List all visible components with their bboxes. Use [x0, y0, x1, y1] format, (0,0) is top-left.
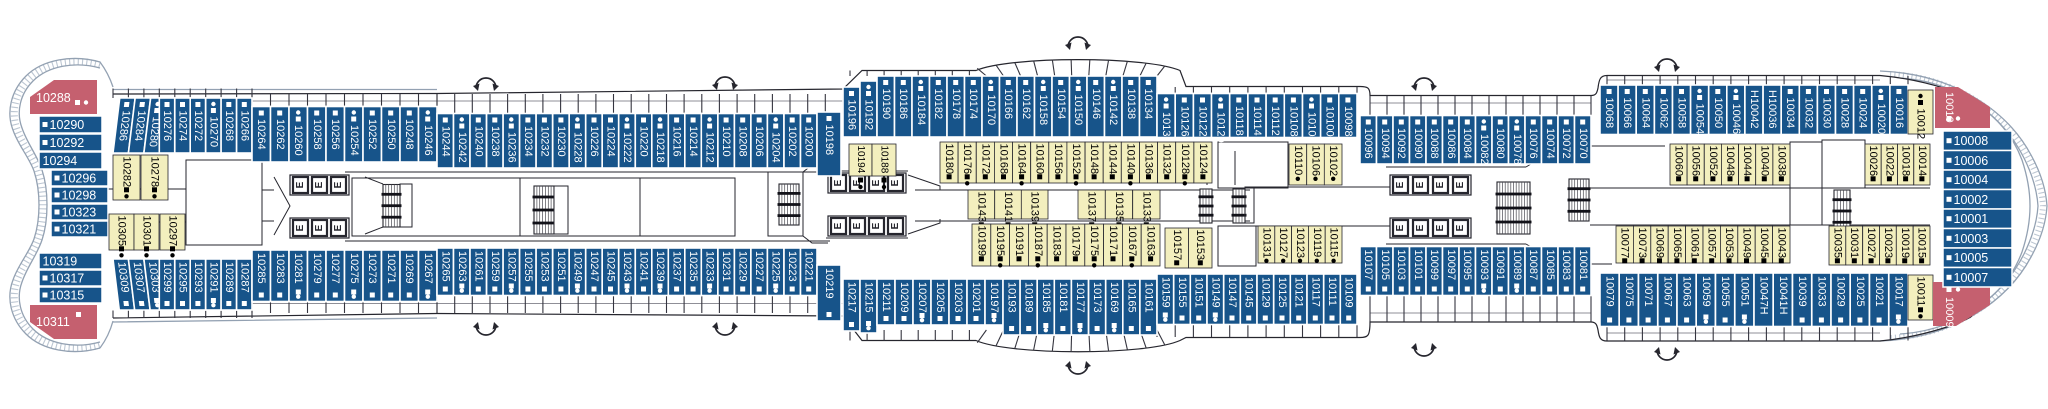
- svg-text:10098: 10098: [1342, 106, 1354, 137]
- svg-text:10093: 10093: [1478, 250, 1490, 281]
- svg-text:10175: 10175: [1088, 226, 1100, 257]
- svg-text:10094: 10094: [1379, 128, 1391, 159]
- svg-text:10191: 10191: [1013, 226, 1025, 257]
- svg-text:E: E: [1435, 181, 1446, 188]
- svg-text:10216: 10216: [671, 126, 683, 157]
- svg-text:10218: 10218: [654, 132, 666, 163]
- svg-text:10250: 10250: [385, 119, 397, 150]
- svg-text:10085: 10085: [1544, 250, 1556, 281]
- svg-text:10163: 10163: [1145, 226, 1157, 257]
- svg-text:E: E: [333, 224, 344, 231]
- svg-text:10241: 10241: [638, 251, 650, 282]
- svg-text:E: E: [833, 179, 844, 186]
- svg-text:10315: 10315: [50, 289, 85, 303]
- svg-text:E: E: [871, 179, 882, 186]
- svg-text:10128: 10128: [1179, 144, 1191, 175]
- svg-text:10059: 10059: [1700, 276, 1712, 307]
- svg-text:10219: 10219: [823, 268, 835, 299]
- svg-text:H10042: H10042: [1748, 90, 1760, 129]
- svg-text:10135: 10135: [1113, 192, 1125, 223]
- svg-text:10217: 10217: [846, 282, 858, 313]
- svg-text:10176: 10176: [961, 144, 973, 175]
- svg-text:10023: 10023: [1882, 228, 1894, 259]
- svg-text:10052: 10052: [1707, 146, 1719, 177]
- svg-text:10053: 10053: [1723, 228, 1735, 259]
- svg-text:10050: 10050: [1712, 98, 1724, 129]
- svg-text:10230: 10230: [555, 126, 567, 157]
- svg-text:10179: 10179: [1069, 226, 1081, 257]
- svg-text:10294: 10294: [43, 154, 78, 168]
- svg-text:10089: 10089: [1511, 250, 1523, 281]
- svg-text:10159: 10159: [1159, 277, 1171, 308]
- svg-text:10210: 10210: [720, 126, 732, 157]
- svg-text:10242: 10242: [456, 132, 468, 163]
- svg-text:10185: 10185: [1040, 282, 1052, 313]
- svg-text:10237: 10237: [671, 251, 683, 282]
- svg-text:10107: 10107: [1362, 250, 1374, 281]
- svg-text:10301: 10301: [141, 216, 153, 247]
- svg-text:10277: 10277: [329, 253, 341, 284]
- svg-text:10131: 10131: [1260, 228, 1272, 259]
- svg-text:10311: 10311: [36, 315, 70, 329]
- svg-text:10206: 10206: [753, 126, 765, 157]
- svg-text:10254: 10254: [348, 125, 360, 156]
- svg-text:10045: 10045: [1758, 228, 1770, 259]
- svg-text:E: E: [871, 222, 882, 229]
- svg-text:10190: 10190: [880, 89, 892, 120]
- svg-text:10165: 10165: [1125, 282, 1137, 313]
- svg-text:10239: 10239: [654, 251, 666, 282]
- svg-text:10255: 10255: [522, 251, 534, 282]
- svg-text:10111: 10111: [1326, 277, 1338, 306]
- svg-text:E: E: [852, 222, 863, 229]
- svg-text:10081: 10081: [1577, 250, 1589, 281]
- svg-text:10055: 10055: [1719, 276, 1731, 307]
- svg-text:10017: 10017: [1892, 276, 1904, 307]
- svg-text:10022: 10022: [1883, 146, 1895, 177]
- svg-text:10012: 10012: [1915, 109, 1927, 140]
- svg-text:10292: 10292: [50, 136, 85, 150]
- svg-text:10102: 10102: [1327, 146, 1339, 177]
- svg-text:E: E: [1455, 224, 1466, 231]
- svg-text:E: E: [295, 224, 306, 231]
- svg-text:10060: 10060: [1673, 146, 1685, 177]
- svg-text:10215: 10215: [863, 282, 875, 313]
- svg-text:10299: 10299: [161, 262, 173, 293]
- svg-text:10028: 10028: [1839, 98, 1851, 129]
- svg-text:10273: 10273: [366, 253, 378, 284]
- svg-text:10180: 10180: [943, 144, 955, 175]
- svg-text:10151: 10151: [1193, 277, 1205, 308]
- svg-text:10073: 10073: [1636, 228, 1648, 259]
- svg-text:10067: 10067: [1661, 276, 1673, 307]
- svg-text:10221: 10221: [803, 251, 815, 282]
- svg-text:E: E: [1415, 224, 1426, 231]
- svg-text:10141: 10141: [1002, 192, 1014, 223]
- svg-text:10295: 10295: [177, 262, 189, 293]
- svg-text:10182: 10182: [932, 89, 944, 120]
- svg-text:10212: 10212: [704, 132, 716, 163]
- svg-text:10268: 10268: [223, 111, 235, 142]
- svg-text:10279: 10279: [311, 253, 323, 284]
- svg-text:10231: 10231: [720, 251, 732, 282]
- svg-text:10245: 10245: [605, 251, 617, 282]
- svg-text:10169: 10169: [1108, 282, 1120, 313]
- svg-text:10130: 10130: [1160, 112, 1172, 143]
- svg-text:10147: 10147: [1226, 277, 1238, 308]
- svg-text:10285: 10285: [255, 253, 267, 284]
- svg-text:10173: 10173: [1091, 282, 1103, 313]
- svg-text:10152: 10152: [1070, 144, 1082, 175]
- svg-text:10051: 10051: [1738, 276, 1750, 307]
- svg-text:10232: 10232: [538, 126, 550, 157]
- svg-text:10143: 10143: [975, 192, 987, 223]
- svg-text:10034: 10034: [1784, 98, 1796, 129]
- svg-text:10092: 10092: [1395, 128, 1407, 159]
- svg-text:10200: 10200: [803, 126, 815, 157]
- svg-text:10293: 10293: [192, 262, 204, 293]
- svg-text:10120: 10120: [1215, 112, 1227, 143]
- svg-text:10276: 10276: [161, 111, 173, 142]
- svg-text:10269: 10269: [403, 253, 415, 284]
- svg-text:10114: 10114: [1251, 106, 1263, 136]
- svg-text:10240: 10240: [472, 126, 484, 157]
- svg-text:10080: 10080: [1494, 128, 1506, 159]
- svg-text:10134: 10134: [1142, 89, 1154, 120]
- svg-text:10253: 10253: [538, 251, 550, 282]
- svg-text:10183: 10183: [1051, 226, 1063, 257]
- svg-text:10142: 10142: [1107, 95, 1119, 126]
- svg-text:10214: 10214: [687, 126, 699, 157]
- svg-text:10046: 10046: [1730, 104, 1742, 135]
- svg-text:10223: 10223: [786, 251, 798, 282]
- svg-text:10137: 10137: [1086, 192, 1098, 223]
- svg-text:10070: 10070: [1577, 128, 1589, 159]
- svg-text:10063: 10063: [1681, 276, 1693, 307]
- svg-text:10058: 10058: [1676, 98, 1688, 129]
- svg-text:10014: 10014: [1916, 146, 1928, 177]
- svg-text:E: E: [295, 181, 306, 188]
- svg-text:E: E: [1395, 181, 1406, 188]
- svg-text:10149: 10149: [1209, 277, 1221, 308]
- svg-text:10069: 10069: [1654, 228, 1666, 259]
- svg-text:10192: 10192: [863, 100, 875, 131]
- svg-text:10049: 10049: [1741, 228, 1753, 259]
- svg-text:10160: 10160: [1034, 144, 1046, 175]
- svg-text:10211: 10211: [880, 282, 892, 312]
- svg-text:10003: 10003: [1954, 232, 1989, 246]
- svg-text:10043: 10043: [1775, 228, 1787, 259]
- svg-text:10061: 10061: [1688, 228, 1700, 259]
- svg-text:10198: 10198: [823, 125, 835, 156]
- svg-text:10209: 10209: [898, 282, 910, 313]
- svg-text:10184: 10184: [915, 95, 927, 126]
- svg-text:10162: 10162: [1020, 89, 1032, 120]
- svg-text:10090: 10090: [1412, 128, 1424, 159]
- svg-text:10260: 10260: [292, 125, 304, 156]
- svg-text:10121: 10121: [1293, 277, 1305, 308]
- svg-text:10205: 10205: [934, 282, 946, 313]
- svg-text:10074: 10074: [1544, 128, 1556, 159]
- svg-text:E: E: [890, 222, 901, 229]
- svg-text:10068: 10068: [1603, 98, 1615, 129]
- svg-text:E: E: [314, 181, 325, 188]
- svg-text:E: E: [833, 222, 844, 229]
- svg-text:10164: 10164: [1016, 144, 1028, 175]
- svg-text:10127: 10127: [1277, 228, 1289, 259]
- svg-text:10099: 10099: [1428, 250, 1440, 281]
- svg-text:10129: 10129: [1259, 277, 1271, 308]
- svg-text:10265: 10265: [439, 251, 451, 282]
- svg-text:10178: 10178: [950, 89, 962, 120]
- svg-text:10122: 10122: [1197, 106, 1209, 137]
- svg-text:10199: 10199: [975, 226, 987, 257]
- svg-text:10118: 10118: [1233, 106, 1245, 136]
- svg-text:10193: 10193: [1006, 282, 1018, 313]
- svg-text:10256: 10256: [329, 119, 341, 150]
- svg-text:10297: 10297: [167, 216, 179, 247]
- svg-text:10266: 10266: [238, 111, 250, 142]
- svg-text:10088: 10088: [1428, 128, 1440, 159]
- svg-text:10323: 10323: [62, 206, 97, 220]
- svg-text:10296: 10296: [62, 172, 97, 186]
- svg-text:10025: 10025: [1854, 276, 1866, 307]
- svg-text:10234: 10234: [522, 126, 534, 157]
- svg-text:10100: 10100: [1324, 106, 1336, 137]
- svg-text:10096: 10096: [1362, 128, 1374, 159]
- svg-text:10282: 10282: [121, 157, 133, 188]
- svg-text:10019: 10019: [1899, 228, 1911, 259]
- svg-text:10009: 10009: [1943, 297, 1955, 328]
- svg-text:10007: 10007: [1954, 271, 1989, 285]
- svg-text:10271: 10271: [385, 253, 397, 284]
- svg-text:10321: 10321: [62, 223, 97, 237]
- svg-text:10027: 10027: [1865, 228, 1877, 259]
- svg-text:10145: 10145: [1243, 277, 1255, 308]
- svg-text:10140: 10140: [1124, 144, 1136, 175]
- svg-text:10196: 10196: [846, 100, 858, 131]
- svg-text:10161: 10161: [1142, 282, 1154, 313]
- svg-text:10243: 10243: [621, 251, 633, 282]
- svg-text:10202: 10202: [786, 126, 798, 157]
- svg-text:10150: 10150: [1072, 95, 1084, 126]
- svg-text:10039: 10039: [1796, 276, 1808, 307]
- svg-text:10001: 10001: [1954, 212, 1989, 226]
- svg-text:10203: 10203: [952, 282, 964, 313]
- svg-text:10133: 10133: [1140, 192, 1152, 223]
- svg-text:10044: 10044: [1741, 146, 1753, 177]
- svg-text:10189: 10189: [1023, 282, 1035, 313]
- svg-text:10181: 10181: [1057, 282, 1069, 313]
- svg-text:10035: 10035: [1831, 228, 1843, 259]
- svg-text:10252: 10252: [366, 119, 378, 150]
- svg-text:10246: 10246: [422, 125, 434, 156]
- svg-text:10274: 10274: [177, 111, 189, 142]
- svg-text:10166: 10166: [1002, 89, 1014, 120]
- svg-text:10319: 10319: [43, 255, 78, 269]
- svg-text:10259: 10259: [489, 251, 501, 282]
- svg-text:10283: 10283: [274, 253, 286, 284]
- svg-text:10144: 10144: [1106, 144, 1118, 175]
- svg-text:10263: 10263: [456, 251, 468, 282]
- svg-text:10062: 10062: [1657, 98, 1669, 129]
- svg-text:10275: 10275: [348, 253, 360, 284]
- svg-text:10018: 10018: [1900, 146, 1912, 177]
- svg-text:10071: 10071: [1642, 276, 1654, 307]
- svg-text:10082: 10082: [1478, 134, 1490, 165]
- svg-text:10048: 10048: [1724, 146, 1736, 177]
- svg-text:10021: 10021: [1873, 276, 1885, 307]
- svg-text:10041H: 10041H: [1777, 276, 1789, 315]
- svg-text:10172: 10172: [979, 144, 991, 175]
- svg-text:10038: 10038: [1775, 146, 1787, 177]
- svg-text:10177: 10177: [1074, 282, 1086, 313]
- svg-text:10290: 10290: [50, 118, 85, 132]
- svg-text:10029: 10029: [1835, 276, 1847, 307]
- svg-text:10238: 10238: [489, 126, 501, 157]
- svg-text:10083: 10083: [1560, 250, 1572, 281]
- svg-text:E: E: [890, 179, 901, 186]
- svg-text:10157: 10157: [1171, 230, 1183, 261]
- svg-text:10146: 10146: [1090, 89, 1102, 120]
- svg-text:10032: 10032: [1802, 98, 1814, 129]
- svg-text:10108: 10108: [1287, 106, 1299, 137]
- svg-text:10220: 10220: [638, 126, 650, 157]
- svg-text:10248: 10248: [403, 119, 415, 150]
- svg-text:10126: 10126: [1178, 106, 1190, 137]
- svg-text:10207: 10207: [916, 282, 928, 313]
- svg-text:10064: 10064: [1639, 98, 1651, 129]
- svg-text:10236: 10236: [505, 132, 517, 163]
- svg-text:10087: 10087: [1527, 250, 1539, 281]
- svg-text:10267: 10267: [422, 253, 434, 284]
- svg-text:E: E: [1435, 224, 1446, 231]
- svg-text:10287: 10287: [238, 262, 250, 293]
- svg-text:10225: 10225: [770, 251, 782, 282]
- svg-text:10194: 10194: [855, 146, 866, 174]
- svg-text:10257: 10257: [505, 251, 517, 282]
- svg-text:10258: 10258: [311, 119, 323, 150]
- svg-text:10262: 10262: [274, 119, 286, 150]
- svg-text:10011: 10011: [1915, 277, 1927, 307]
- svg-text:10117: 10117: [1309, 277, 1321, 307]
- svg-text:10015: 10015: [1916, 228, 1928, 259]
- svg-text:10272: 10272: [192, 111, 204, 142]
- svg-text:10004: 10004: [1954, 173, 1989, 187]
- svg-text:10079: 10079: [1604, 276, 1616, 307]
- svg-text:10264: 10264: [255, 119, 267, 150]
- svg-text:10077: 10077: [1619, 228, 1631, 259]
- svg-text:10123: 10123: [1294, 228, 1306, 259]
- svg-text:10020: 10020: [1875, 104, 1887, 135]
- svg-text:10201: 10201: [970, 282, 982, 313]
- svg-text:10132: 10132: [1161, 144, 1173, 175]
- svg-text:10167: 10167: [1126, 226, 1138, 257]
- svg-text:10170: 10170: [985, 95, 997, 126]
- svg-text:10224: 10224: [605, 126, 617, 157]
- svg-text:10040: 10040: [1758, 146, 1770, 177]
- svg-text:E: E: [333, 181, 344, 188]
- svg-text:10229: 10229: [737, 251, 749, 282]
- svg-text:10188: 10188: [879, 146, 890, 174]
- svg-text:E: E: [1395, 224, 1406, 231]
- svg-text:10024: 10024: [1857, 98, 1869, 129]
- svg-text:10139: 10139: [1029, 192, 1041, 223]
- svg-text:10091: 10091: [1494, 250, 1506, 281]
- svg-text:E: E: [1415, 181, 1426, 188]
- svg-text:10075: 10075: [1623, 276, 1635, 307]
- svg-text:10124: 10124: [1197, 144, 1209, 175]
- svg-text:10097: 10097: [1445, 250, 1457, 281]
- svg-text:10186: 10186: [897, 89, 909, 120]
- svg-text:10006: 10006: [1954, 154, 1989, 168]
- svg-text:10065: 10065: [1671, 228, 1683, 259]
- svg-text:10261: 10261: [472, 251, 484, 282]
- svg-text:10078: 10078: [1511, 134, 1523, 165]
- svg-text:10195: 10195: [994, 226, 1006, 257]
- svg-text:10138: 10138: [1125, 89, 1137, 120]
- svg-text:10005: 10005: [1954, 251, 1989, 265]
- svg-text:10278: 10278: [149, 157, 161, 188]
- svg-text:10197: 10197: [988, 282, 1000, 313]
- svg-text:10148: 10148: [1088, 144, 1100, 175]
- svg-text:10291: 10291: [207, 262, 219, 293]
- svg-text:10235: 10235: [687, 251, 699, 282]
- svg-text:10033: 10033: [1815, 276, 1827, 307]
- svg-text:10270: 10270: [207, 117, 219, 148]
- svg-text:10289: 10289: [223, 262, 235, 293]
- svg-text:10222: 10222: [621, 132, 633, 163]
- svg-text:10101: 10101: [1412, 250, 1424, 281]
- svg-text:10112: 10112: [1269, 106, 1281, 136]
- svg-text:10298: 10298: [62, 189, 97, 203]
- svg-text:10008: 10008: [1954, 134, 1989, 148]
- svg-text:E: E: [314, 224, 325, 231]
- svg-text:10103: 10103: [1395, 250, 1407, 281]
- svg-text:10305: 10305: [116, 216, 128, 247]
- svg-text:10016: 10016: [1893, 98, 1905, 129]
- svg-text:H10036: H10036: [1766, 90, 1778, 129]
- svg-text:10174: 10174: [967, 89, 979, 120]
- svg-text:10125: 10125: [1276, 277, 1288, 308]
- svg-text:10281: 10281: [292, 253, 304, 284]
- svg-text:10086: 10086: [1445, 128, 1457, 159]
- svg-text:10317: 10317: [50, 272, 85, 286]
- svg-text:10106: 10106: [1310, 146, 1322, 177]
- svg-text:10076: 10076: [1527, 128, 1539, 159]
- svg-text:10208: 10208: [737, 126, 749, 157]
- svg-text:10072: 10072: [1560, 128, 1572, 159]
- svg-text:10030: 10030: [1821, 98, 1833, 129]
- svg-text:10066: 10066: [1621, 98, 1633, 129]
- svg-text:10057: 10057: [1706, 228, 1718, 259]
- svg-text:10153: 10153: [1194, 230, 1206, 261]
- svg-text:10095: 10095: [1461, 250, 1473, 281]
- svg-text:10031: 10031: [1848, 228, 1860, 259]
- svg-text:10110: 10110: [1292, 146, 1304, 176]
- svg-text:10288: 10288: [36, 91, 71, 105]
- svg-text:10187: 10187: [1032, 226, 1044, 257]
- svg-text:E: E: [1455, 181, 1466, 188]
- svg-text:10155: 10155: [1176, 277, 1188, 308]
- svg-text:10158: 10158: [1037, 95, 1049, 126]
- svg-text:10227: 10227: [753, 251, 765, 282]
- svg-text:10119: 10119: [1311, 228, 1323, 258]
- svg-text:10084: 10084: [1461, 128, 1473, 159]
- svg-text:10154: 10154: [1055, 89, 1067, 120]
- svg-text:10026: 10026: [1867, 146, 1879, 177]
- svg-text:10056: 10056: [1690, 146, 1702, 177]
